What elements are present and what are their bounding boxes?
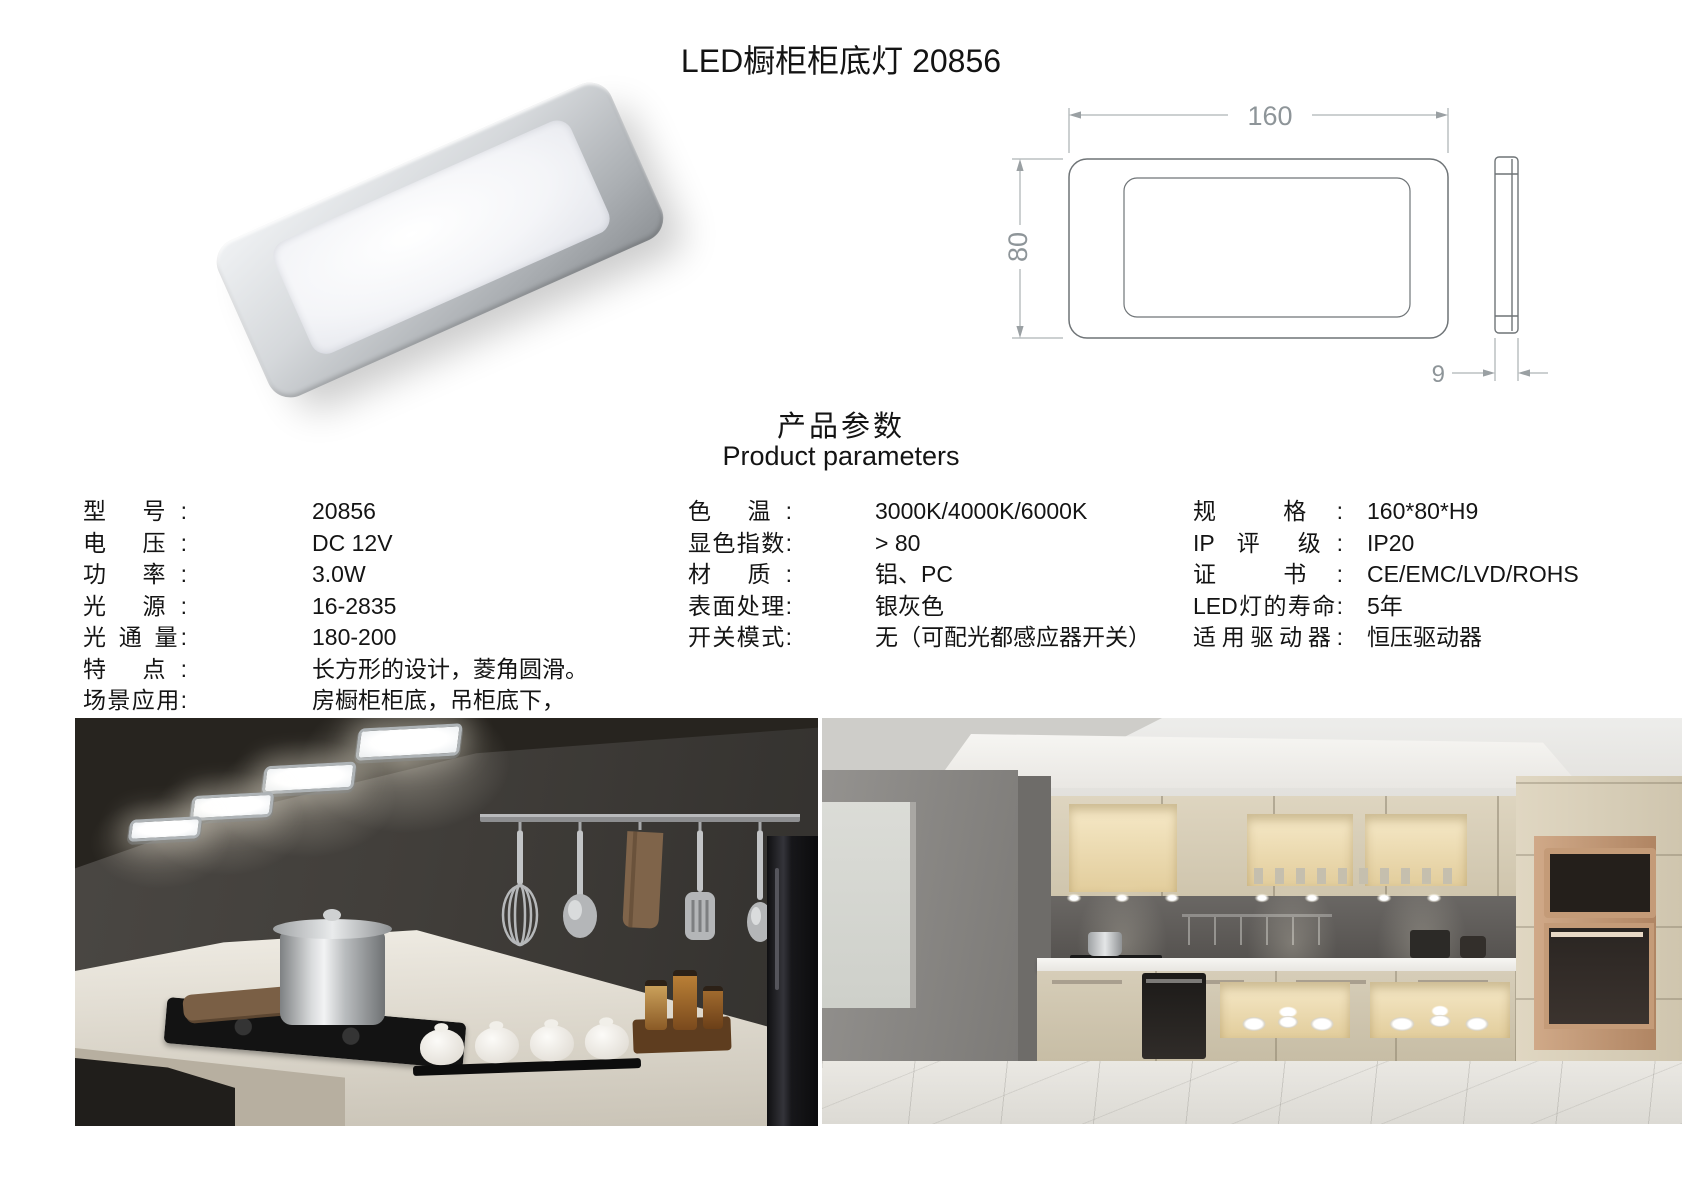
spec-value: 铝、PC (875, 559, 953, 591)
spec-label: 特 点: (83, 654, 187, 686)
spec-row-led-lifespan: LED灯的寿命:5年 (1193, 591, 1673, 623)
spec-row-switch-mode: 开关模式:无（可配光都感应器开关） (688, 622, 1158, 654)
spec-label: 光 源: (83, 591, 187, 623)
spec-value: 房橱柜柜底，吊柜底下， (312, 685, 565, 717)
spec-row-driver: 适用驱动器:恒压驱动器 (1193, 622, 1673, 654)
spec-label: 场景应用: (83, 685, 187, 717)
spec-label: LED灯的寿命: (1193, 591, 1343, 623)
spec-column-2: 色 温:3000K/4000K/6000K 显色指数:> 80 材 质:铝、PC… (688, 496, 1158, 654)
dim-height-label: 80 (1003, 232, 1033, 262)
spec-value: 5年 (1367, 591, 1403, 623)
oven-handle (1551, 932, 1643, 937)
pot-knob (323, 909, 341, 921)
spatula-icon (685, 830, 715, 940)
spec-row-ip-rating: IP 评 级:IP20 (1193, 528, 1673, 560)
spec-column-1: 型 号:20856 电 压:DC 12V 功 率:3.0W 光 源:16-283… (83, 496, 703, 717)
spec-value: 16-2835 (312, 591, 396, 623)
led-lamp-diffuser (268, 115, 615, 359)
spec-row-power: 功 率:3.0W (83, 559, 703, 591)
spec-value: 长方形的设计，菱角圆滑。 (312, 654, 588, 686)
spice-jar (673, 970, 697, 1030)
spec-label: 功 率: (83, 559, 187, 591)
ceramic-pot (529, 1024, 574, 1062)
product-photo (190, 80, 670, 410)
spec-label: 规 格: (1193, 496, 1343, 528)
kitchen-photo-left (75, 718, 818, 1126)
ladle-icon (563, 830, 597, 938)
pot-knob (489, 1021, 503, 1030)
spec-value: > 80 (875, 528, 920, 560)
dimension-drawing: 160 80 9 (1000, 95, 1560, 395)
towel (622, 831, 663, 929)
spice-jar (703, 986, 723, 1029)
led-lamp-image (209, 75, 671, 405)
spec-label: 证 书: (1193, 559, 1343, 591)
spec-column-3: 规 格:160*80*H9 IP 评 级:IP20 证 书:CE/EMC/LVD… (1193, 496, 1673, 654)
spice-jar (645, 980, 667, 1030)
spec-row-luminous-flux: 光 通 量:180-200 (83, 622, 703, 654)
spec-value: 160*80*H9 (1367, 496, 1478, 528)
section-heading-en: Product parameters (0, 441, 1682, 472)
spec-value: 3.0W (312, 559, 366, 591)
dim-width-label: 160 (1247, 101, 1292, 131)
whisk-icon (503, 830, 537, 945)
spec-label: 电 压: (83, 528, 187, 560)
under-cabinet-panel (355, 723, 463, 761)
ceramic-pot (474, 1026, 519, 1064)
pot-knob (544, 1019, 558, 1028)
dimension-lines (1012, 108, 1548, 381)
wall-oven (1544, 923, 1654, 1029)
dim-thickness-label: 9 (1432, 361, 1445, 388)
pot-lid (273, 919, 392, 939)
spec-row-size: 规 格:160*80*H9 (1193, 496, 1673, 528)
spec-value: DC 12V (312, 528, 393, 560)
front-view-outline (1069, 159, 1448, 338)
spec-value: IP20 (1367, 528, 1414, 560)
spec-value: 180-200 (312, 622, 396, 654)
spec-row-voltage: 电 压:DC 12V (83, 528, 703, 560)
spec-row-finish: 表面处理:银灰色 (688, 591, 1158, 623)
spec-row-color-temp: 色 温:3000K/4000K/6000K (688, 496, 1158, 528)
spec-row-features: 特 点:长方形的设计，菱角圆滑。 (83, 654, 703, 686)
kitchen-photo-right (822, 718, 1682, 1124)
ceramic-pots (419, 1022, 640, 1070)
spec-row-cri: 显色指数:> 80 (688, 528, 1158, 560)
spec-label: 光 通 量: (83, 622, 187, 654)
spec-value: 银灰色 (875, 591, 944, 623)
pot-knob (599, 1017, 613, 1026)
ceramic-pot (419, 1028, 464, 1066)
spec-label: 材 质: (688, 559, 792, 591)
ceramic-pot (584, 1023, 629, 1061)
spec-value: 恒压驱动器 (1367, 622, 1482, 654)
tile-floor (822, 1061, 1682, 1124)
microwave (1544, 848, 1656, 918)
spec-label: 表面处理: (688, 591, 792, 623)
spec-row-model: 型 号:20856 (83, 496, 703, 528)
spec-value: 3000K/4000K/6000K (875, 496, 1087, 528)
pot-knob (434, 1023, 448, 1032)
spec-value: 无（可配光都感应器开关） (875, 622, 1151, 654)
spec-value: 20856 (312, 496, 376, 528)
under-cabinet-panel (128, 816, 203, 842)
page-title: LED橱柜柜底灯 20856 (0, 36, 1682, 82)
datasheet-page: LED橱柜柜底灯 20856 (0, 0, 1682, 1185)
spec-row-certificates: 证 书:CE/EMC/LVD/ROHS (1193, 559, 1673, 591)
side-view-outline (1495, 157, 1518, 333)
spec-label: 显色指数: (688, 528, 792, 560)
under-cabinet-panel (261, 761, 356, 794)
spec-label: 适用驱动器: (1193, 622, 1343, 654)
dimension-arrows (1016, 111, 1530, 376)
spec-row-application: 场景应用:房橱柜柜底，吊柜底下， (83, 685, 703, 717)
spec-label: 开关模式: (688, 622, 792, 654)
spec-row-light-source: 光 源:16-2835 (83, 591, 703, 623)
section-heading-zh: 产品参数 (0, 403, 1682, 445)
fridge-handle (775, 868, 779, 990)
spec-value: CE/EMC/LVD/ROHS (1367, 559, 1579, 591)
under-cabinet-panel (190, 792, 275, 821)
spec-label: 色 温: (688, 496, 792, 528)
spec-row-material: 材 质:铝、PC (688, 559, 1158, 591)
spec-label: 型 号: (83, 496, 187, 528)
cooking-pot (280, 930, 385, 1025)
spec-label: IP 评 级: (1193, 528, 1343, 560)
